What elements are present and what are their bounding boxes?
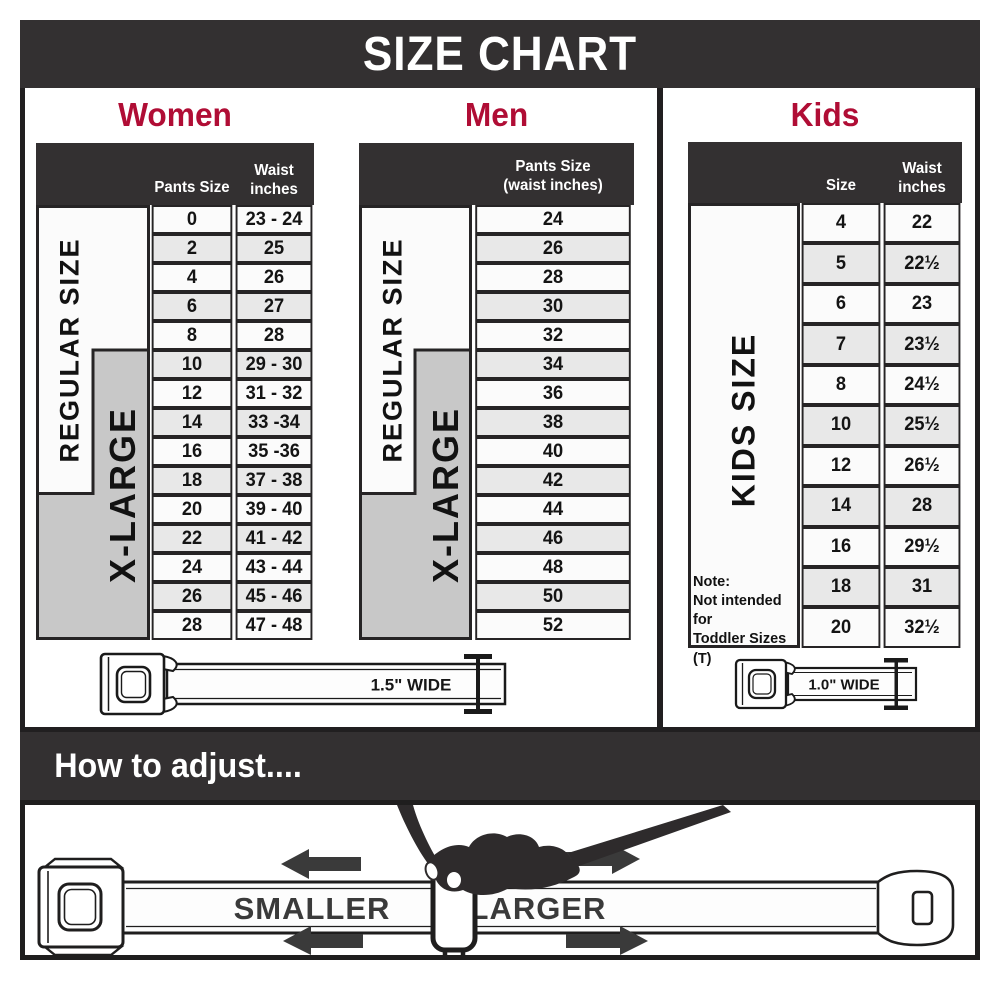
table-row: 1231 - 32 (150, 379, 314, 408)
table-cell: 22 (152, 524, 233, 553)
table-cell: 26 (236, 263, 313, 292)
table-cell: 14 (152, 408, 233, 437)
table-cell: 5 (802, 243, 881, 283)
table-row: 30 (472, 292, 634, 321)
table-row: 26 (472, 234, 634, 263)
table-cell: 48 (475, 553, 631, 582)
table-cell: 32 (475, 321, 631, 350)
women-col-pants-size: Pants Size (153, 179, 232, 198)
table-cell: 4 (802, 203, 881, 243)
table-row: 2032½ (800, 607, 962, 647)
table-cell: 37 - 38 (236, 466, 313, 495)
table-row: 1629½ (800, 527, 962, 567)
table-cell: 22½ (884, 243, 961, 283)
table-cell: 47 - 48 (236, 611, 313, 640)
table-row: 46 (472, 524, 634, 553)
table-cell: 10 (802, 405, 881, 445)
table-cell: 2 (152, 234, 233, 263)
men-xlarge-label: X-LARGE (425, 407, 467, 583)
table-cell: 43 - 44 (236, 553, 313, 582)
adjust-illustration: SMALLER LARGER (25, 805, 975, 955)
arrow-left-icon (281, 849, 361, 879)
table-cell: 14 (802, 486, 881, 526)
table-row: 2847 - 48 (150, 611, 314, 640)
table-row: 2241 - 42 (150, 524, 314, 553)
table-row: 40 (472, 437, 634, 466)
adult-belt-width-label: 1.5" WIDE (371, 676, 452, 695)
table-cell: 28 (884, 486, 961, 526)
table-cell: 31 (884, 567, 961, 607)
table-cell: 23½ (884, 324, 961, 364)
table-cell: 28 (475, 263, 631, 292)
table-cell: 8 (802, 365, 881, 405)
seatbelt-buckle-icon (101, 654, 177, 714)
table-row: 824½ (800, 365, 962, 405)
table-cell: 28 (152, 611, 233, 640)
table-cell: 16 (802, 527, 881, 567)
section-heading-men: Men (365, 96, 629, 134)
table-row: 023 - 24 (150, 205, 314, 234)
table-row: 1831 (800, 567, 962, 607)
table-row: 225 (150, 234, 314, 263)
seatbelt-buckle-icon (736, 660, 795, 708)
table-cell: 33 -34 (236, 408, 313, 437)
men-regular-size-label: REGULAR SIZE (378, 237, 409, 462)
kids-table-rows: 422522½623723½824½1025½1226½14281629½183… (800, 203, 962, 648)
table-cell: 23 (884, 284, 961, 324)
adult-belt-illustration: 1.5" WIDE (95, 648, 515, 724)
table-row: 2443 - 44 (150, 553, 314, 582)
table-row: 50 (472, 582, 634, 611)
table-cell: 28 (236, 321, 313, 350)
table-cell: 6 (802, 284, 881, 324)
table-cell: 4 (152, 263, 233, 292)
table-row: 28 (472, 263, 634, 292)
table-row: 723½ (800, 324, 962, 364)
table-cell: 10 (152, 350, 233, 379)
table-row: 627 (150, 292, 314, 321)
table-cell: 38 (475, 408, 631, 437)
women-xlarge-label: X-LARGE (102, 407, 144, 583)
table-cell: 30 (475, 292, 631, 321)
section-heading-kids: Kids (693, 96, 956, 134)
seatbelt-buckle-icon (39, 859, 123, 955)
table-cell: 20 (802, 607, 881, 647)
kids-col-waist: Waist inches (884, 160, 959, 198)
women-col-waist: Waist inches (236, 162, 311, 200)
table-cell: 31 - 32 (236, 379, 313, 408)
table-row: 1226½ (800, 446, 962, 486)
table-row: 2039 - 40 (150, 495, 314, 524)
table-row: 42 (472, 466, 634, 495)
table-cell: 8 (152, 321, 233, 350)
table-cell: 12 (802, 446, 881, 486)
table-row: 38 (472, 408, 634, 437)
table-cell: 26 (475, 234, 631, 263)
table-cell: 24½ (884, 365, 961, 405)
section-divider (657, 88, 663, 732)
table-row: 623 (800, 284, 962, 324)
table-cell: 46 (475, 524, 631, 553)
table-cell: 32½ (884, 607, 961, 647)
table-cell: 24 (475, 205, 631, 234)
men-col-pants-size: Pants Size (waist inches) (477, 158, 629, 196)
table-row: 48 (472, 553, 634, 582)
table-row: 1029 - 30 (150, 350, 314, 379)
table-cell: 41 - 42 (236, 524, 313, 553)
table-row: 44 (472, 495, 634, 524)
women-table-header: Pants Size Waist inches (36, 143, 314, 205)
table-row: 1433 -34 (150, 408, 314, 437)
table-cell: 6 (152, 292, 233, 321)
table-cell: 18 (152, 466, 233, 495)
table-cell: 26½ (884, 446, 961, 486)
table-row: 34 (472, 350, 634, 379)
table-row: 1635 -36 (150, 437, 314, 466)
table-row: 422 (800, 203, 962, 243)
belt-tip-icon (878, 871, 953, 945)
table-cell: 29½ (884, 527, 961, 567)
how-to-adjust-band: How to adjust.... (20, 732, 980, 800)
table-cell: 29 - 30 (236, 350, 313, 379)
table-row: 1025½ (800, 405, 962, 445)
table-row: 52 (472, 611, 634, 640)
table-cell: 52 (475, 611, 631, 640)
table-cell: 40 (475, 437, 631, 466)
table-row: 2645 - 46 (150, 582, 314, 611)
table-row: 24 (472, 205, 634, 234)
table-cell: 24 (152, 553, 233, 582)
table-cell: 42 (475, 466, 631, 495)
table-cell: 44 (475, 495, 631, 524)
kids-belt-illustration: 1.0" WIDE (732, 654, 927, 718)
table-cell: 39 - 40 (236, 495, 313, 524)
kids-belt-width-label: 1.0" WIDE (808, 677, 879, 694)
women-table-rows: 023 - 242254266278281029 - 301231 - 3214… (150, 205, 314, 640)
table-cell: 25 (236, 234, 313, 263)
table-cell: 36 (475, 379, 631, 408)
men-table-header: Pants Size (waist inches) (359, 143, 634, 205)
table-row: 522½ (800, 243, 962, 283)
table-cell: 22 (884, 203, 961, 243)
table-row: 1837 - 38 (150, 466, 314, 495)
table-cell: 0 (152, 205, 233, 234)
size-chart-page: SIZE CHART Women Men Kids Pants Size Wai… (0, 0, 1000, 1000)
table-row: 426 (150, 263, 314, 292)
how-to-adjust-title: How to adjust.... (20, 747, 302, 786)
table-cell: 35 -36 (236, 437, 313, 466)
table-cell: 45 - 46 (236, 582, 313, 611)
table-cell: 20 (152, 495, 233, 524)
table-cell: 26 (152, 582, 233, 611)
kids-table-header: Size Waist inches (688, 142, 962, 203)
table-row: 32 (472, 321, 634, 350)
table-row: 36 (472, 379, 634, 408)
table-row: 1428 (800, 486, 962, 526)
men-table-rows: 242628303234363840424446485052 (472, 205, 634, 640)
table-cell: 18 (802, 567, 881, 607)
kids-size-label: KIDS SIZE (726, 333, 763, 507)
women-regular-size-label: REGULAR SIZE (55, 237, 86, 462)
kids-note-title: Note: (693, 573, 799, 592)
table-cell: 7 (802, 324, 881, 364)
table-row: 828 (150, 321, 314, 350)
smaller-label: SMALLER (234, 891, 391, 926)
kids-col-size: Size (802, 177, 879, 196)
table-cell: 27 (236, 292, 313, 321)
larger-label: LARGER (470, 891, 607, 926)
belt-strap (167, 664, 505, 704)
table-cell: 23 - 24 (236, 205, 313, 234)
diagonal-strap (568, 805, 731, 867)
title-band: SIZE CHART (20, 20, 980, 88)
section-heading-women: Women (42, 96, 309, 134)
table-cell: 12 (152, 379, 233, 408)
page-title: SIZE CHART (363, 27, 637, 82)
table-cell: 34 (475, 350, 631, 379)
table-cell: 16 (152, 437, 233, 466)
table-cell: 25½ (884, 405, 961, 445)
table-cell: 50 (475, 582, 631, 611)
